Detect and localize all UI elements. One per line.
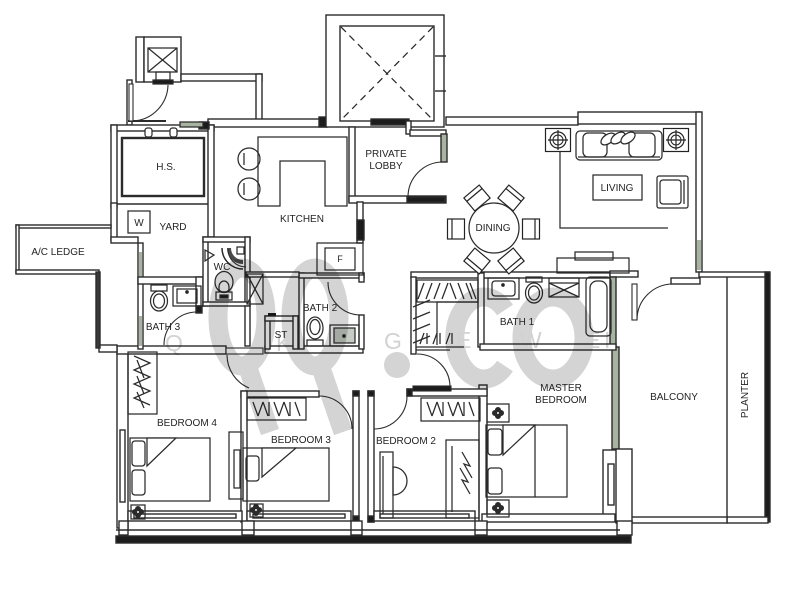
svg-text:BATH 1: BATH 1 xyxy=(500,317,535,328)
svg-text:WC: WC xyxy=(214,262,231,273)
svg-text:MASTER: MASTER xyxy=(540,383,582,394)
svg-text:F: F xyxy=(337,254,343,264)
svg-text:E: E xyxy=(585,327,600,353)
svg-text:BALCONY: BALCONY xyxy=(650,392,698,403)
svg-text:H.S.: H.S. xyxy=(156,162,175,173)
svg-text:BEDROOM: BEDROOM xyxy=(535,395,587,406)
svg-text:BATH 2: BATH 2 xyxy=(303,303,338,314)
svg-text:Q: Q xyxy=(165,330,183,356)
svg-text:BATH 3: BATH 3 xyxy=(146,322,181,333)
svg-text:E: E xyxy=(456,327,471,353)
svg-text:G: G xyxy=(384,328,402,354)
svg-text:PRIVATE: PRIVATE xyxy=(365,149,407,160)
svg-text:U: U xyxy=(212,330,229,356)
svg-text:KITCHEN: KITCHEN xyxy=(280,214,324,225)
svg-text:BEDROOM 3: BEDROOM 3 xyxy=(271,435,331,446)
svg-text:W: W xyxy=(520,327,542,353)
svg-text:BEDROOM 4: BEDROOM 4 xyxy=(157,418,217,429)
svg-text:A/C LEDGE: A/C LEDGE xyxy=(31,247,85,258)
svg-text:LOBBY: LOBBY xyxy=(369,161,403,172)
svg-text:BEDROOM 2: BEDROOM 2 xyxy=(376,436,436,447)
svg-text:ST: ST xyxy=(275,330,288,341)
svg-text:YARD: YARD xyxy=(159,222,186,233)
svg-text:I: I xyxy=(604,327,610,353)
svg-text:PLANTER: PLANTER xyxy=(740,372,751,418)
svg-text:DINING: DINING xyxy=(476,223,511,234)
svg-text:LIVING: LIVING xyxy=(601,183,634,194)
svg-text:W: W xyxy=(134,218,144,229)
